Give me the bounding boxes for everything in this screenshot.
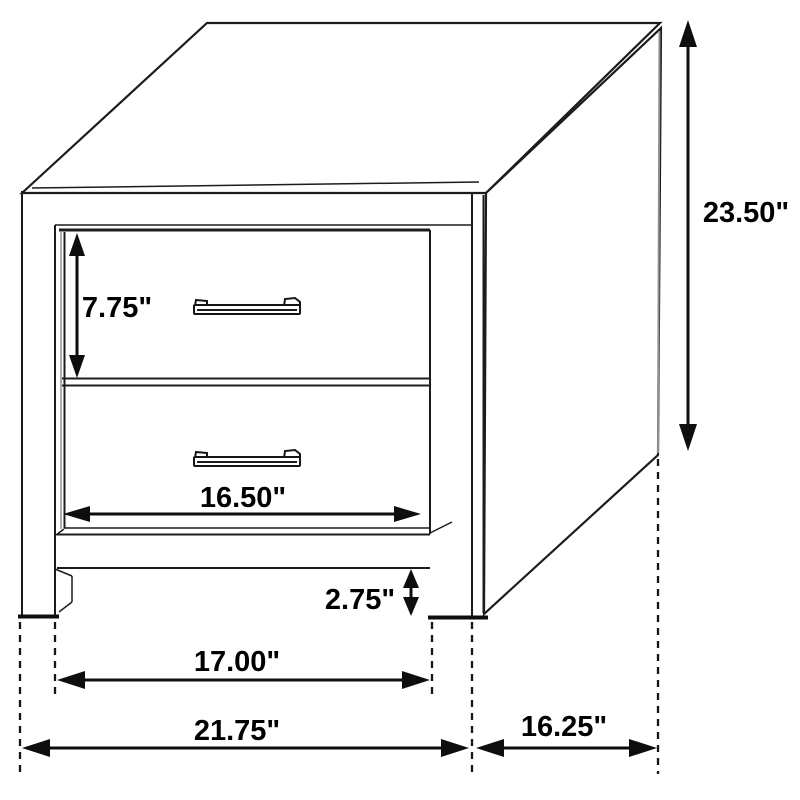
dim-label-depth: 16.25" xyxy=(521,711,607,743)
dim-label-overall-height: 23.50" xyxy=(703,197,789,229)
dim-label-drawer-height: 7.75" xyxy=(82,292,152,324)
dim-label-overall-width: 21.75" xyxy=(194,715,280,747)
dim-label-drawer-width: 16.50" xyxy=(200,482,286,514)
dim-label-leg-height: 2.75" xyxy=(325,584,395,616)
nightstand-dimension-diagram: 7.75" 23.50" 16.50" 2.75" 17.00" 21.75" … xyxy=(0,0,800,800)
dim-label-inner-width: 17.00" xyxy=(194,646,280,678)
